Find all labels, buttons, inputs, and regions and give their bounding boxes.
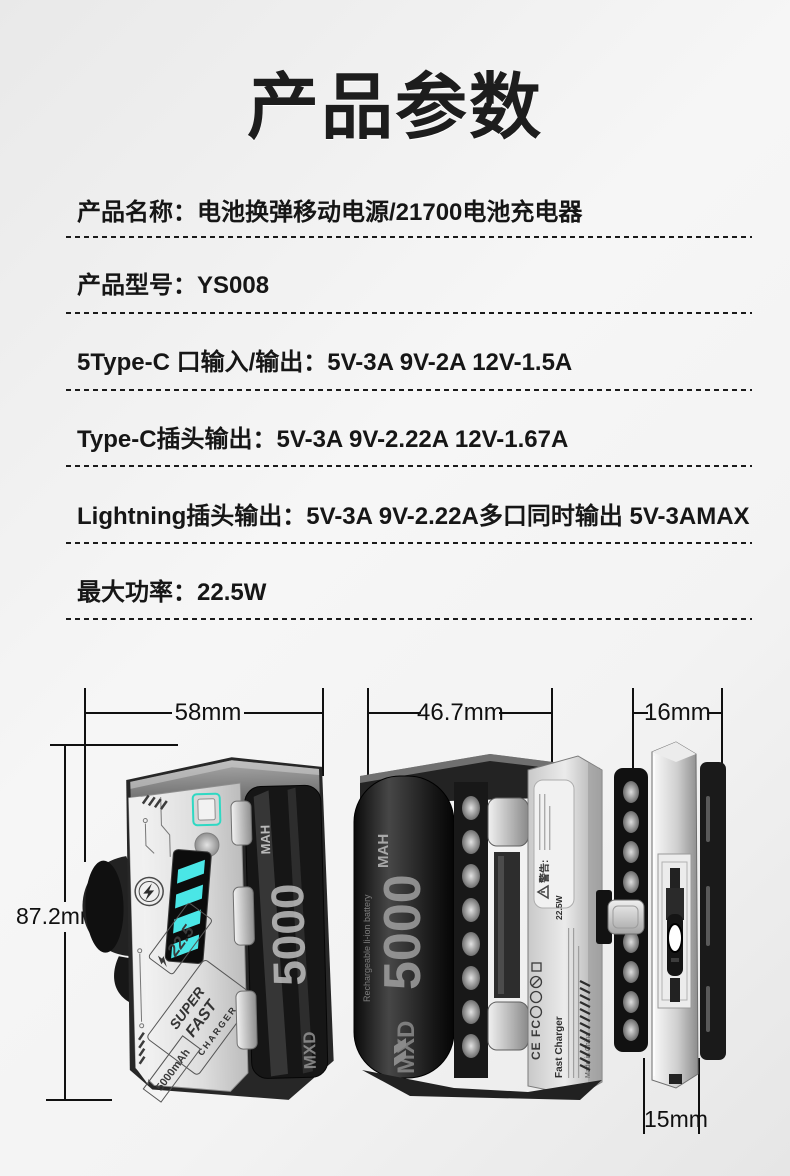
- dim-line: [244, 712, 324, 714]
- svg-text:MAH: MAH: [375, 834, 392, 868]
- spec-row-typec-port: 5Type-C 口输入/输出：5V-3A 9V-2A 12V-1.5A: [77, 342, 767, 374]
- divider: [66, 236, 752, 238]
- rear-strip: [700, 762, 726, 1060]
- dim-line: [499, 712, 553, 714]
- svg-text:Rechargeable li-ion battery: Rechargeable li-ion battery: [362, 894, 372, 1002]
- dim-plug-width: 15mm: [644, 1106, 700, 1133]
- spec-row-model: 产品型号：YS008: [77, 265, 767, 297]
- device-front-view: 22.5 SUPER FAST CHARGER 5000mAh 5000 MAH…: [71, 735, 341, 1112]
- warning-label: 警告:: [534, 780, 574, 908]
- usb-c-plug: [596, 890, 644, 944]
- divider: [66, 465, 752, 467]
- svg-text:22.5W: 22.5W: [554, 894, 564, 920]
- dim-tick: [64, 932, 66, 1101]
- dim-tick: [64, 744, 66, 902]
- spec-row-typec-plug: Type-C插头输出：5V-3A 9V-2.22A 12V-1.67A: [77, 419, 767, 451]
- product-parameters-page: 产品参数 产品名称：电池换弹移动电源/21700电池充电器 产品型号：YS008…: [0, 0, 790, 1176]
- dim-line: [367, 712, 421, 714]
- dim-front-width: 58mm: [168, 699, 248, 727]
- dim-line: [84, 712, 172, 714]
- svg-text:Fast Charger: Fast Charger: [554, 1016, 565, 1078]
- svg-text:CE FC: CE FC: [529, 1019, 543, 1060]
- battery-holder-bumps: [454, 782, 488, 1078]
- svg-text:警告:: 警告:: [538, 860, 551, 884]
- spec-row-product-name: 产品名称：电池换弹移动电源/21700电池充电器: [77, 192, 767, 224]
- svg-text:MXD: MXD: [300, 1031, 320, 1069]
- svg-text:5000: 5000: [374, 874, 432, 990]
- divider: [66, 312, 752, 314]
- battery-cell: 5000 MXD MAH Rechargeable li-ion battery: [354, 776, 454, 1078]
- svg-text:5000: 5000: [261, 883, 316, 987]
- spec-row-max-power: 最大功率：22.5W: [77, 572, 767, 604]
- spec-row-lightning-plug: Lightning插头输出：5V-3A 9V-2.22A多口同时输出 5V-3A…: [77, 496, 767, 528]
- power-button: [193, 794, 221, 826]
- bottom-notch: [669, 1074, 682, 1084]
- divider: [66, 389, 752, 391]
- hinge-clips: [488, 798, 528, 1050]
- slider-mechanism: [658, 854, 691, 1008]
- dim-side-width: 16mm: [644, 699, 710, 727]
- dim-back-width: 46.7mm: [417, 699, 503, 727]
- svg-text:MAH: MAH: [257, 825, 273, 855]
- lightning-icon: [135, 877, 164, 906]
- device-back-view: 5000 MXD MAH Rechargeable li-ion battery: [350, 740, 645, 1110]
- divider: [66, 542, 752, 544]
- page-title: 产品参数: [0, 48, 790, 153]
- divider: [66, 618, 752, 620]
